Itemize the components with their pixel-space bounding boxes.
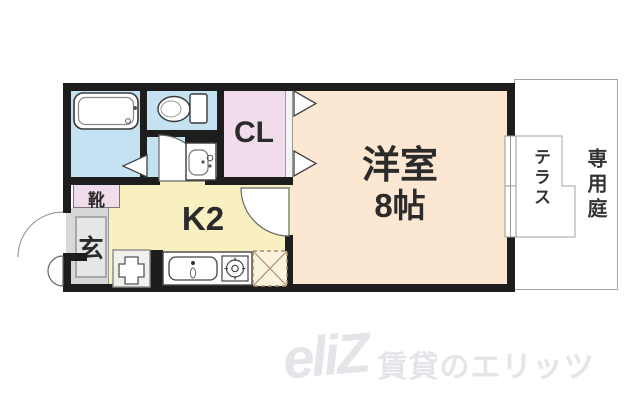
- floorplan-page: { "rooms": { "western_room": {"line1": "…: [0, 0, 640, 416]
- closet-label: CL: [222, 116, 286, 150]
- closet-door-icon: [294, 91, 316, 176]
- bathtub-icon: [74, 93, 138, 129]
- kitchen-label: K2: [168, 200, 238, 238]
- toilet-icon: [158, 94, 207, 123]
- washer-space-icon: [113, 250, 150, 287]
- shoe-cabinet-label: 靴: [73, 186, 120, 211]
- door-swing-icon: [241, 188, 289, 236]
- washbasin-icon: [186, 143, 216, 180]
- refrigerator-space-icon: [253, 251, 287, 286]
- stove-icon: [222, 256, 248, 281]
- folding-door-icon: [123, 155, 147, 177]
- western-room-size: 8帖: [330, 188, 470, 224]
- private-garden-label: 専用庭: [581, 148, 610, 223]
- entrance-door-icon: [18, 212, 63, 286]
- window-icon: [505, 136, 516, 237]
- terrace-label: テラス: [528, 148, 553, 208]
- western-room-name: 洋室: [330, 146, 470, 188]
- western-room-label: 洋室 8帖: [330, 146, 470, 224]
